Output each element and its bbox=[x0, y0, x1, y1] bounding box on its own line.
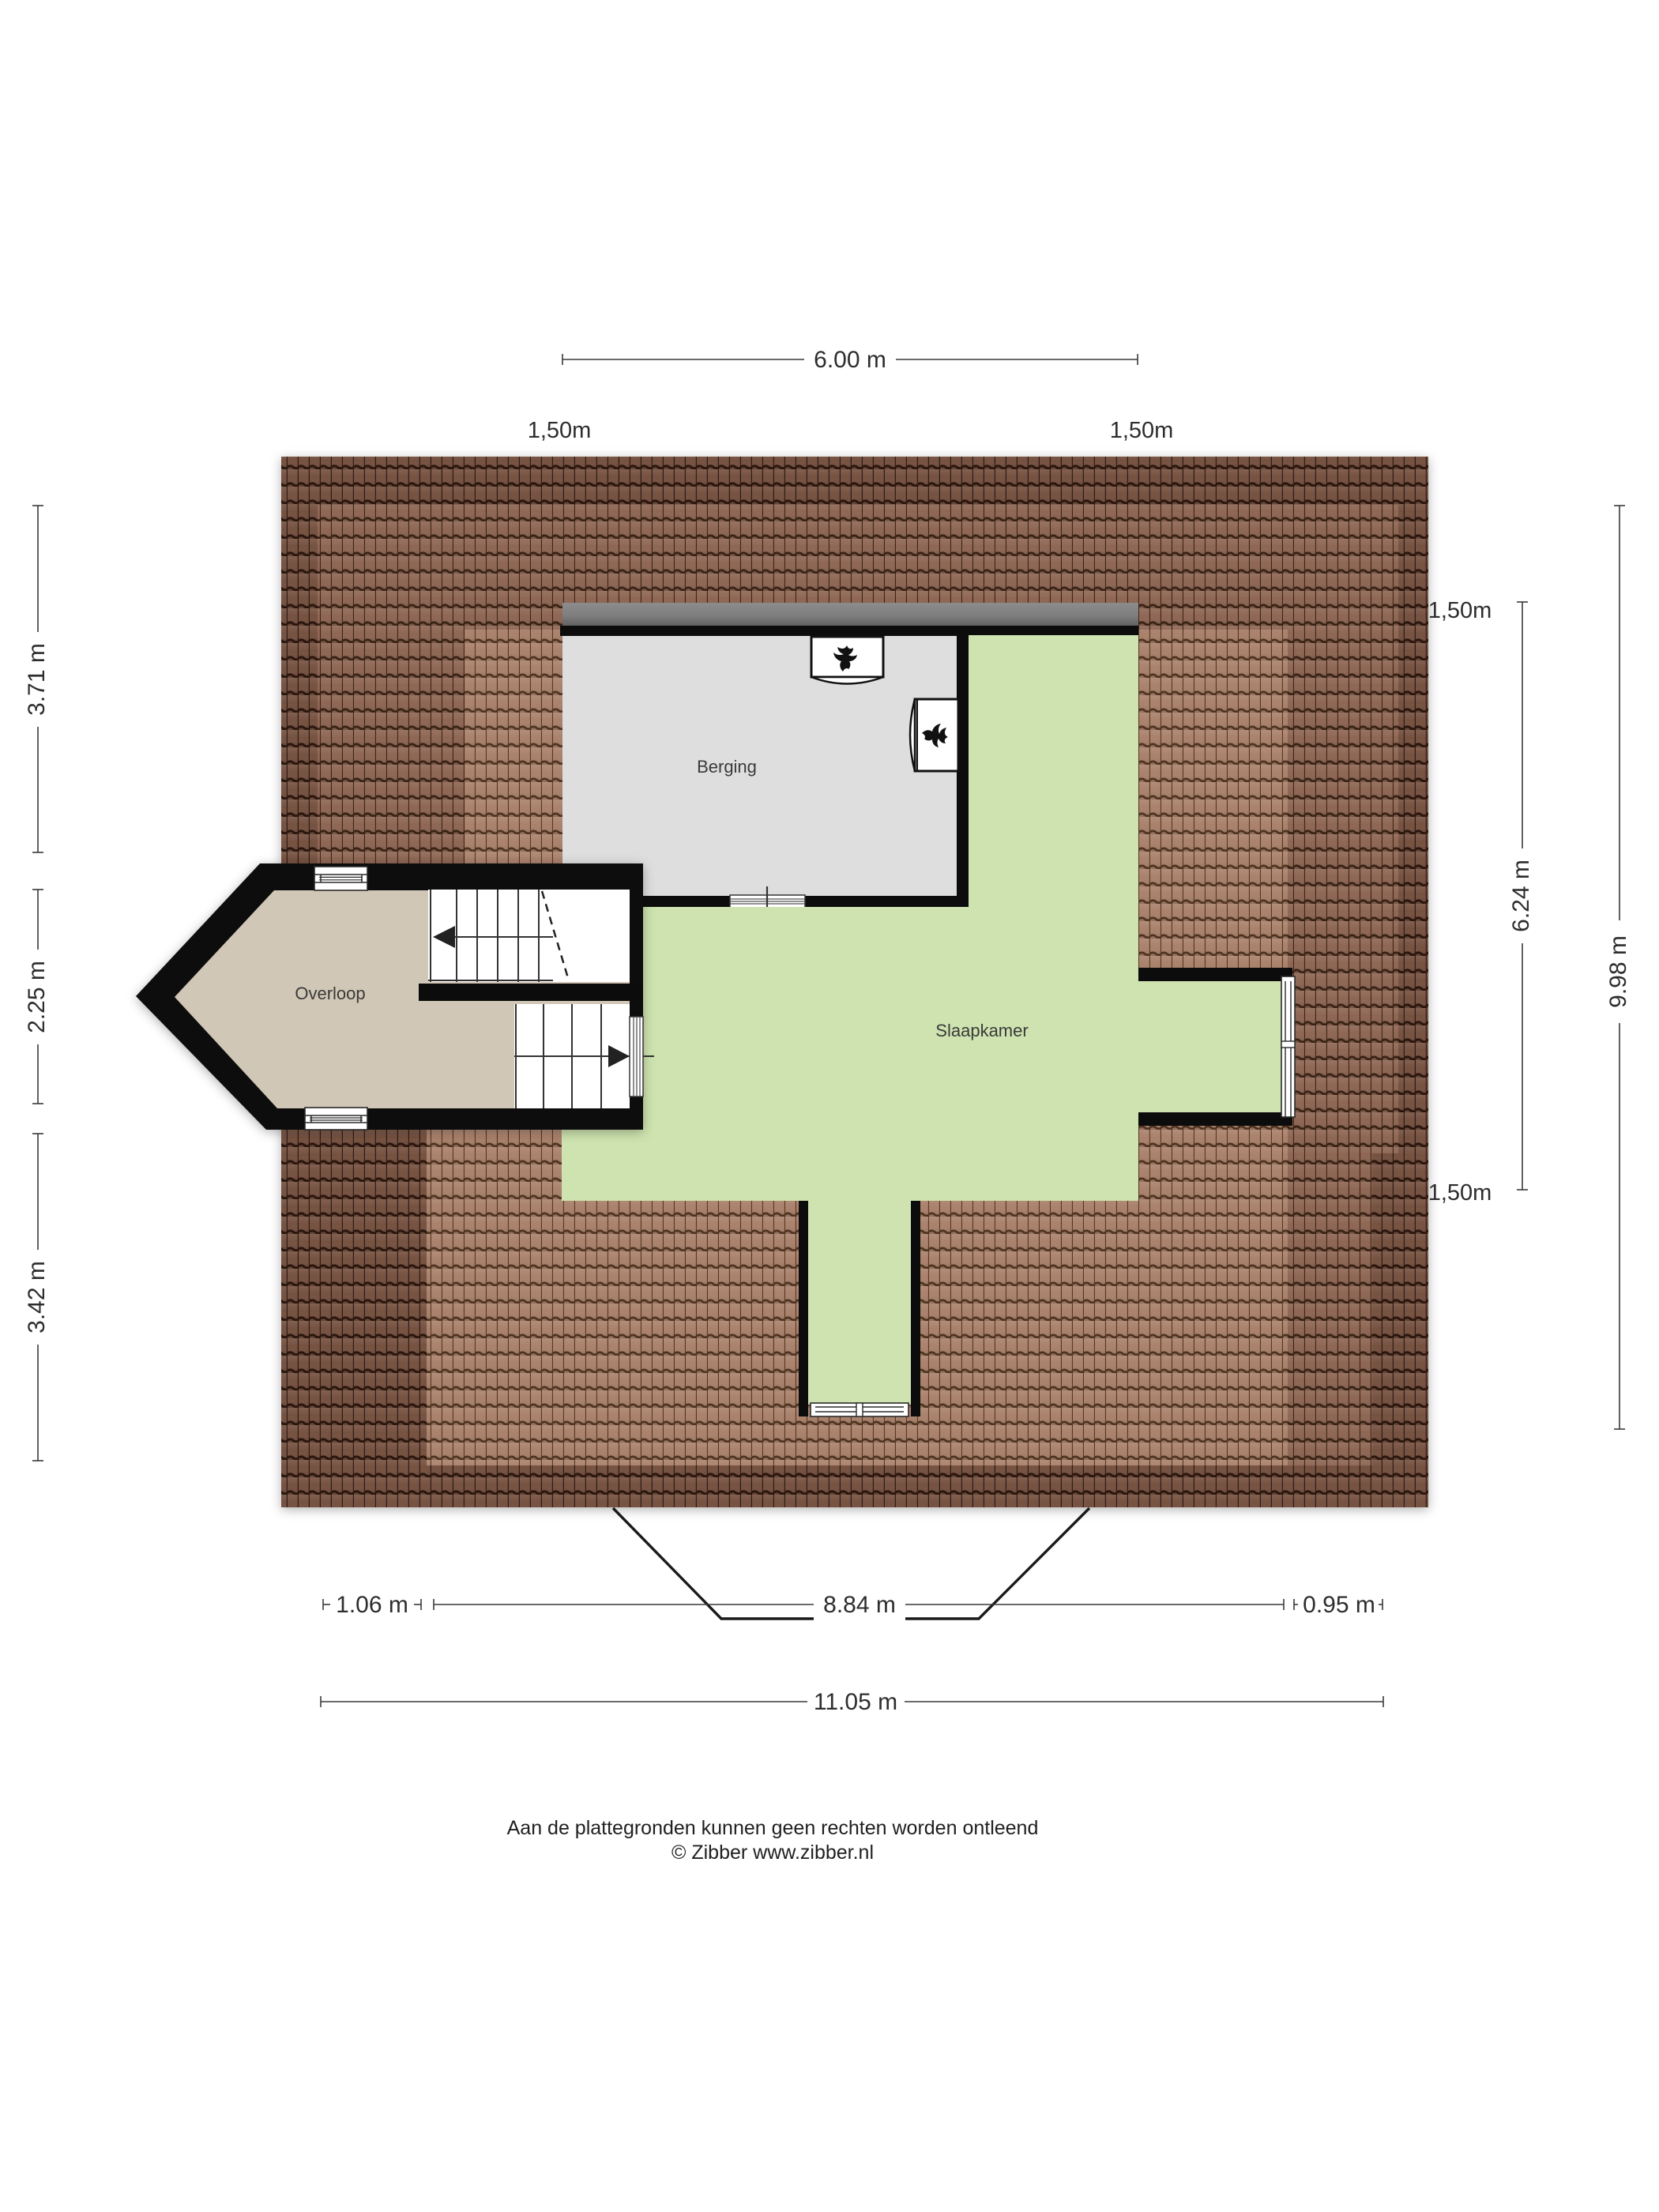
svg-text:1,50m: 1,50m bbox=[1110, 418, 1174, 443]
svg-text:1,50m: 1,50m bbox=[528, 418, 592, 443]
svg-text:0.95 m: 0.95 m bbox=[1303, 1592, 1375, 1618]
svg-text:6.00 m: 6.00 m bbox=[814, 347, 886, 373]
svg-text:3.71 m: 3.71 m bbox=[24, 643, 50, 716]
svg-text:9.98 m: 9.98 m bbox=[1605, 935, 1631, 1008]
svg-text:6.24 m: 6.24 m bbox=[1508, 860, 1534, 932]
svg-text:1.06 m: 1.06 m bbox=[336, 1592, 408, 1618]
svg-text:8.84 m: 8.84 m bbox=[823, 1592, 896, 1618]
svg-text:Berging: Berging bbox=[697, 757, 757, 777]
svg-text:Overloop: Overloop bbox=[295, 984, 365, 1003]
svg-text:1,50m: 1,50m bbox=[1428, 598, 1492, 623]
svg-text:3.42 m: 3.42 m bbox=[24, 1261, 50, 1334]
svg-text:© Zibber www.zibber.nl: © Zibber www.zibber.nl bbox=[671, 1841, 874, 1864]
svg-text:11.05 m: 11.05 m bbox=[814, 1689, 897, 1715]
svg-text:2.25 m: 2.25 m bbox=[24, 961, 50, 1033]
svg-text:1,50m: 1,50m bbox=[1428, 1180, 1492, 1206]
svg-text:Aan de plattegronden kunnen ge: Aan de plattegronden kunnen geen rechten… bbox=[507, 1817, 1039, 1839]
svg-text:Slaapkamer: Slaapkamer bbox=[935, 1021, 1028, 1040]
